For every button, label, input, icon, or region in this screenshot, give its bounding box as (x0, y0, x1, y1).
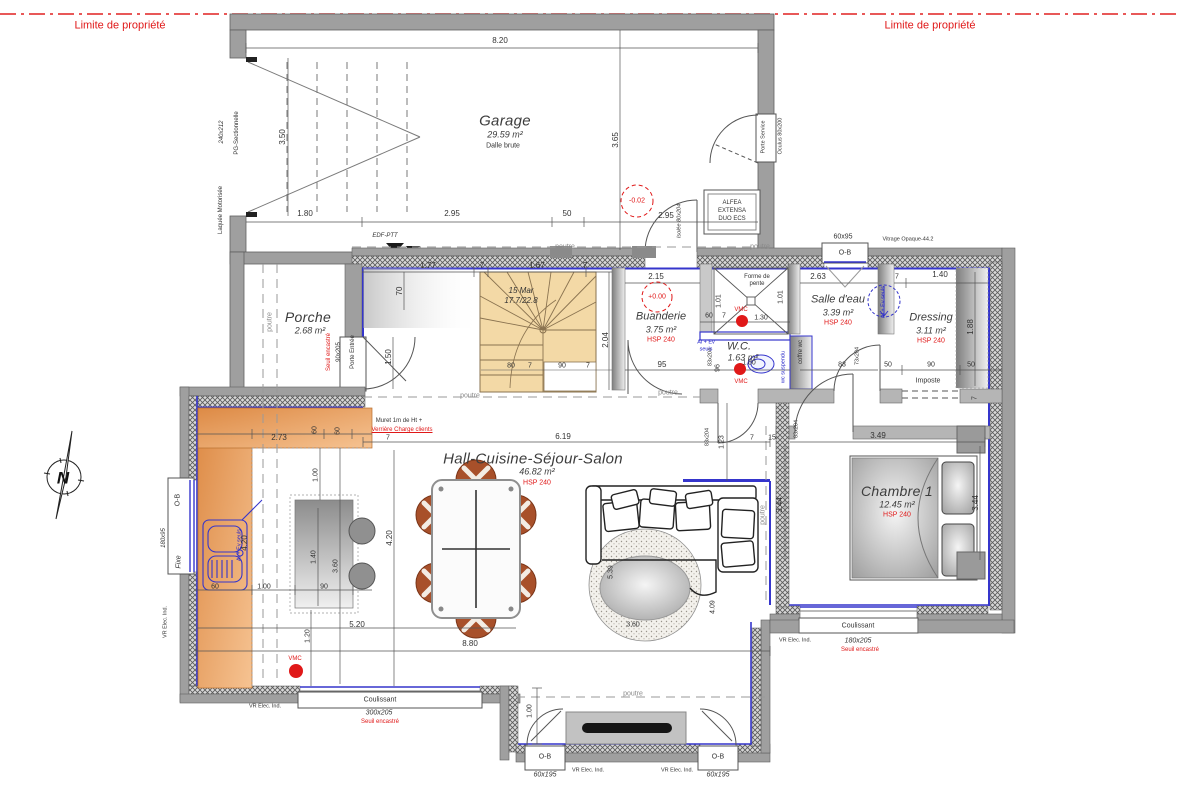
beam-label: poutre (750, 244, 770, 251)
dim: 2.04 (602, 332, 610, 348)
vr-label: VR Elec. Ind. (779, 638, 811, 644)
beam-label: poutre (658, 390, 678, 397)
plan-drawing (0, 0, 1177, 803)
hall-hsp: HSP 240 (523, 480, 551, 487)
beam-label: poutre (623, 691, 643, 698)
vr-label: VR Elec. Ind. (572, 768, 604, 774)
tv-console (566, 712, 686, 744)
dining-table (416, 460, 536, 638)
heater-line3: DUO ECS (718, 216, 745, 222)
dim: 4.20 (386, 530, 394, 546)
garage-inner-door (645, 200, 697, 252)
dim: 90 (558, 363, 566, 370)
dim: 50 (967, 362, 975, 369)
stairs-count: 15 Mar (509, 287, 534, 295)
vr-label: VR Elec. Ind. (163, 606, 169, 638)
kitchen-island (290, 495, 375, 613)
shower-note2: pente (749, 281, 764, 287)
dim: 5.20 (349, 621, 365, 629)
entry-seuil: Seuil encastré (326, 333, 332, 371)
vmc-label: VMC (288, 656, 301, 662)
dressing-area: 3.11 m² (916, 327, 946, 336)
wc-alev2: seuls (700, 347, 713, 353)
entry-size: 90x205 (336, 342, 342, 362)
stool (349, 518, 375, 544)
bottom-left-wall (180, 686, 520, 708)
hall-door: 83x204 (705, 428, 711, 446)
level-ground-label: +0.00 (648, 294, 666, 301)
nightstand (957, 426, 985, 453)
muret-label1: Muret 1m de Ht + (376, 418, 423, 424)
dim: 1.80 (742, 360, 756, 367)
stairs (480, 272, 596, 392)
dim: 1.30 (754, 315, 768, 322)
window-size: 60x195 (534, 772, 557, 779)
imposte-label: Imposte (916, 378, 941, 385)
dim: 50 (563, 210, 572, 218)
dim: 2.63 (810, 273, 826, 281)
room-buanderie: Buanderie (636, 312, 686, 323)
dim: 90 (927, 362, 935, 369)
chambre-bottom-wall (770, 605, 1014, 633)
left-wall (168, 387, 198, 702)
dim: 1.01 (778, 290, 785, 304)
dim: 1.23 (719, 435, 726, 449)
vr-label: VR Elec. Ind. (661, 768, 693, 774)
wc-alev1: Al + Ev (697, 340, 715, 346)
buanderie-area: 3.75 m² (646, 326, 677, 335)
dim: 8.20 (492, 37, 508, 45)
post (632, 246, 656, 258)
right-wall (989, 248, 1015, 633)
garage-door-type: PG-Sectionnelle (234, 111, 240, 154)
dim: 3.60 (333, 559, 340, 573)
dim: 60 (335, 427, 342, 435)
garage-door-size: 240x212 (219, 120, 225, 143)
window-ob-top: O-B (839, 250, 851, 257)
heater-line2: EXTENSA (718, 208, 746, 214)
dim: 1.00 (313, 468, 320, 482)
dim: 3.50 (279, 129, 287, 145)
service-door-label: Porte Service (761, 120, 767, 153)
seuil-label: Seuil encastré (841, 647, 879, 653)
dim: 1.40 (311, 550, 318, 564)
oculus-label: Oculus 80x200 (778, 118, 784, 155)
dressing-hsp: HSP 240 (917, 338, 945, 345)
chambre-area: 12.45 m² (879, 501, 915, 510)
shower-right-wall (788, 264, 800, 334)
coulissant-label: Coulissant (842, 623, 875, 630)
dim: 5.39 (608, 565, 615, 579)
room-wc: W.C. (727, 342, 751, 353)
garage-door-finish: Laquée Motorisée (218, 186, 224, 234)
chambre-door: 83x204 (794, 420, 800, 438)
room-chambre: Chambre 1 (861, 484, 933, 498)
beam-label: poutre (555, 244, 575, 251)
vmc-label: VMC (734, 379, 747, 385)
edf-label: EDF-PTT (372, 233, 397, 239)
dim: 1.20 (305, 629, 312, 643)
dim: 83 (838, 362, 846, 369)
dim: 2.15 (648, 273, 664, 281)
vmc-label: VMC (734, 307, 747, 313)
kitchen-top-wall (180, 387, 365, 408)
dim: 3.44 (776, 497, 784, 513)
vr-label: VR Elec. Ind. (249, 704, 281, 710)
dim: 1.50 (385, 349, 393, 365)
room-hall: Hall-Cuisine-Séjour-Salon (443, 452, 623, 467)
dim: 1.80 (297, 210, 313, 218)
salle-eau-alev: Al + Ev seuls (881, 286, 887, 318)
window-size: 60x195 (707, 772, 730, 779)
vmc-dot (289, 664, 303, 678)
dim: 3.60 (626, 622, 640, 629)
dim: 1.00 (257, 584, 271, 591)
coffre-wc-label: coffre wc (798, 340, 804, 364)
stairs-ratio: 17.7/22.8 (504, 297, 537, 305)
property-limit-right: Limite de propriété (884, 21, 975, 32)
dim: 1.67 (529, 262, 545, 270)
dim: 7 (895, 274, 899, 281)
muret-label2: Verrière Charge clients (371, 427, 432, 433)
coulissant-size: 300x205 (366, 710, 393, 717)
salle-eau-area: 3.39 m² (823, 309, 854, 318)
garage-door (246, 57, 420, 217)
room-porche: Porche (285, 310, 331, 324)
dim: 1.40 (932, 271, 948, 279)
dim: 2.95 (444, 210, 460, 218)
north-letter: N (57, 470, 69, 487)
room-salle-eau: Salle d'eau (811, 295, 865, 306)
nightstand (957, 552, 985, 579)
dim: 80 (507, 363, 515, 370)
dim: 1.77 (420, 262, 436, 270)
shower-note1: Forme de (744, 274, 770, 280)
bed (850, 426, 985, 580)
dim: 7 (750, 435, 754, 442)
window-ob: O-B (539, 754, 551, 761)
pillow (942, 462, 974, 514)
window-size-top: 60x95 (833, 234, 852, 241)
window-ob: O-B (712, 754, 724, 761)
level-garage-label: -0.02 (629, 198, 645, 205)
dim: 90 (320, 584, 328, 591)
dim: 1.88 (967, 319, 975, 335)
dim: 70 (396, 287, 404, 296)
wc-suspendu: wc suspendu (781, 351, 787, 383)
dim: 3.49 (870, 432, 886, 440)
beam-label: poutre (460, 393, 480, 400)
property-limit-left: Limite de propriété (74, 21, 165, 32)
garage-note: Dalle brute (486, 143, 520, 150)
dim: 7 (586, 363, 590, 370)
chambre-hsp: HSP 240 (883, 512, 911, 519)
floor-plan: Limite de propriété Limite de propriété … (0, 0, 1177, 803)
house-top-wall (352, 248, 1002, 269)
dim: 7 (386, 435, 390, 442)
window-size-left: 180x95 (161, 528, 167, 548)
dim: 8.80 (462, 640, 478, 648)
dim: 4.09 (710, 600, 717, 614)
dim: 7 (972, 396, 979, 400)
dim: 3.44 (972, 495, 980, 511)
kitchen-alev: Al + Ev seuls (237, 529, 243, 561)
garage-inner-door-label: Isolée 80x204 (677, 204, 683, 238)
coulissant-size: 180x205 (845, 638, 872, 645)
beam-label: poutre (760, 505, 767, 525)
salle-eau-hsp: HSP 240 (824, 320, 852, 327)
room-dressing: Dressing (909, 313, 952, 324)
entry-door-label: Porte Entrée (350, 335, 356, 369)
hall-area: 46.82 m² (519, 468, 555, 477)
dim: 3.65 (612, 132, 620, 148)
dim: 7 (722, 313, 726, 320)
dim: 6.19 (555, 433, 571, 441)
dim: 60 (211, 584, 219, 591)
dim: 60 (705, 313, 713, 320)
dim: 60 (312, 426, 319, 434)
beam-label: poutre (267, 312, 274, 332)
salle-eau-door: 73x204 (855, 347, 861, 365)
porche-area: 2.68 m² (295, 327, 326, 336)
vitrage-label: Vitrage Opaque-44.2 (883, 237, 934, 243)
dim: 7 (480, 262, 484, 270)
garage-area: 29.59 m² (487, 131, 523, 140)
dim: 50 (884, 362, 892, 369)
dim: 7 (583, 262, 587, 270)
room-garage: Garage (479, 114, 531, 129)
coulissant-label: Coulissant (364, 697, 397, 704)
heater-line1: ALFEA (722, 200, 741, 206)
stairs-divider-wall (612, 268, 625, 390)
shower-left-wall (700, 264, 712, 334)
seuil-label: Seuil encastré (361, 719, 399, 725)
dim: 2.95 (658, 212, 674, 220)
vmc-dot (736, 315, 748, 327)
dim: 15 (768, 435, 776, 442)
dim: 2.73 (271, 434, 287, 442)
dim: 1.00 (527, 704, 534, 718)
dim: 96 (715, 364, 722, 372)
buanderie-hsp: HSP 240 (647, 337, 675, 344)
dim: 1.01 (716, 294, 723, 308)
dim: 95 (658, 361, 667, 369)
window-fixe: Fixe (176, 555, 183, 568)
window-ob-left: O-B (175, 494, 182, 506)
dim: 7 (528, 363, 532, 370)
